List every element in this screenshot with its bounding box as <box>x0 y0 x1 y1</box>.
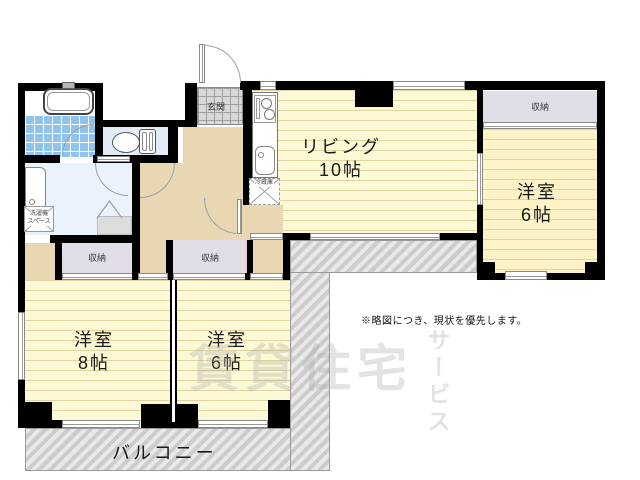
wall-right-outer <box>597 83 605 280</box>
floorplan: リビング 10帖 洋室 6帖 洋室 8帖 洋室 6帖 収納 収納 収納 玄関 冷… <box>0 0 640 480</box>
wall-washroom-right <box>132 163 140 280</box>
western-left-name: 洋室 <box>74 330 114 350</box>
wall-living-bottom-seg2 <box>440 233 477 240</box>
toilet-tank-detail-1 <box>142 132 147 151</box>
wall-top-seg3 <box>465 81 605 90</box>
wall-vestibule-right <box>283 233 290 280</box>
wall-top-seg2 <box>276 81 393 90</box>
wall-washroom-bottom <box>50 235 140 243</box>
closet-center-label: 収納 <box>201 251 219 264</box>
folding-door-symbol <box>96 200 123 219</box>
wall-left-upper <box>18 83 25 312</box>
wall-corner-room-right-2 <box>585 262 605 274</box>
closet-left-label: 収納 <box>88 251 106 264</box>
strip-sliding-door <box>138 273 168 280</box>
stove-burner-2 <box>264 109 275 120</box>
wall-corner-bottom-right <box>268 400 290 428</box>
laundry-label-line1: 洗濯機 <box>30 211 48 218</box>
wall-bath-bottom-left <box>18 155 60 163</box>
bathtub-inner <box>47 92 90 111</box>
room-label-living: リビング 10帖 <box>301 136 381 182</box>
living-balcony-window <box>310 233 440 240</box>
kitchen-top-window <box>260 81 276 90</box>
kitchen-sink <box>255 146 275 175</box>
balcony-label: バルコニー <box>112 439 217 465</box>
wall-corner-bottom-left <box>18 402 52 428</box>
closet-right-sliding-door <box>483 122 597 129</box>
wall-pillar-living <box>355 90 393 107</box>
closet-center-sliding-door <box>173 273 247 280</box>
hallway-upper-floor <box>183 127 243 165</box>
sink-faucet <box>258 152 264 158</box>
closet-right-label: 収納 <box>531 100 549 113</box>
wall-left-lower <box>18 380 25 402</box>
living-name: リビング <box>301 137 381 157</box>
disclaimer-note: ※略図につき、現状を優先します。 <box>361 312 527 327</box>
wall-bottom-seg1 <box>52 420 62 428</box>
western-right-size: 6帖 <box>521 205 553 225</box>
wall-entrance-left <box>185 83 197 127</box>
living-size: 10帖 <box>319 160 363 180</box>
bathtub <box>43 88 94 115</box>
stove-burner-1 <box>261 98 272 109</box>
room-label-western-right: 洋室 6帖 <box>517 181 557 227</box>
living-to-room-sliding-door <box>477 153 483 205</box>
wall-corner-room-right-1 <box>483 262 495 274</box>
washroom-vanity <box>25 167 46 210</box>
laundry-label-line2: スペース <box>27 219 50 226</box>
toilet-bowl <box>112 132 140 153</box>
stove-grill <box>256 98 260 119</box>
room-label-western-left: 洋室 8帖 <box>74 329 114 375</box>
closet-left-sliding-door <box>62 273 133 280</box>
room-left-balcony-window <box>62 420 140 428</box>
hallway-strip-floor <box>140 240 166 273</box>
bathtub-tap <box>62 82 75 89</box>
room-center-balcony-window <box>198 420 268 428</box>
watermark-vertical-text: サービス <box>420 328 454 436</box>
western-right-name: 洋室 <box>517 182 557 202</box>
toilet-tank-detail-2 <box>149 132 153 151</box>
toilet-tank <box>139 129 156 154</box>
entrance-door-arc <box>204 45 241 83</box>
room-left-side-window <box>18 312 25 380</box>
wall-living-bottom-seg1 <box>283 233 313 240</box>
refrigerator-label: 冷蔵庫 <box>254 180 274 187</box>
toilet-door-leaf <box>97 156 130 162</box>
watermark-text: 賃貸住宅 <box>189 329 413 401</box>
hallway-nook-floor <box>25 243 55 280</box>
living-top-window <box>393 81 465 90</box>
western-left-size: 8帖 <box>78 353 110 373</box>
vanity-faucet <box>29 199 35 205</box>
room-right-bottom-window <box>505 271 547 280</box>
outside-band-below-living <box>290 240 477 273</box>
partition-between-rooms <box>170 280 177 422</box>
vestibule-sliding-door <box>250 273 283 280</box>
wall-closet-left-side <box>55 240 62 280</box>
entrance-label: 玄関 <box>207 100 225 113</box>
vestibule-opening <box>250 233 283 240</box>
